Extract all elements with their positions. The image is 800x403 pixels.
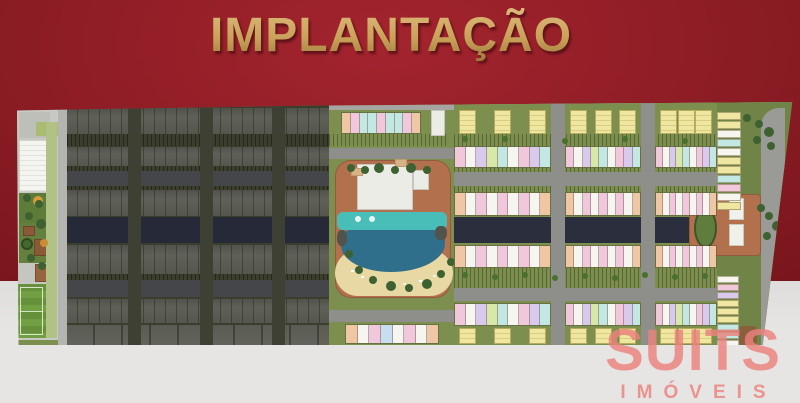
unit-tile xyxy=(487,246,498,267)
unit-tile xyxy=(498,246,509,267)
unit-tile xyxy=(656,147,663,167)
unit-tile xyxy=(633,193,640,215)
unit-tile xyxy=(633,147,640,167)
unit-pair-tile xyxy=(695,110,712,134)
unit-tile xyxy=(670,304,677,325)
unit-pair-tile xyxy=(570,110,587,134)
unit-tile xyxy=(540,304,550,325)
unit-pair-tile xyxy=(459,328,476,344)
unit-tile xyxy=(395,113,404,133)
unit-pair-tile xyxy=(494,110,511,134)
unit-row-mixed xyxy=(655,146,717,168)
unit-tile xyxy=(624,147,632,167)
unit-tile xyxy=(583,246,591,267)
unit-tile xyxy=(676,246,683,267)
unit-tile xyxy=(519,304,530,325)
unit-tile xyxy=(566,246,574,267)
unit-tile xyxy=(676,304,683,325)
right-stack-tag xyxy=(717,284,739,291)
unit-tile xyxy=(466,304,477,325)
unit-tile xyxy=(690,246,697,267)
unit-pair-tile xyxy=(619,110,636,134)
unit-tile xyxy=(381,325,393,343)
unit-tile xyxy=(697,193,704,215)
center-top-building xyxy=(341,112,421,134)
units-layer xyxy=(17,102,793,345)
unit-row-pairs xyxy=(565,328,641,344)
unit-tile xyxy=(683,193,690,215)
unit-row-mixed xyxy=(565,303,641,326)
unit-tile xyxy=(591,193,599,215)
unit-tile xyxy=(530,147,541,167)
unit-tile xyxy=(574,304,582,325)
unit-tile xyxy=(616,246,624,267)
unit-tile xyxy=(690,147,697,167)
right-stack-tag xyxy=(717,121,741,129)
unit-tile xyxy=(633,246,640,267)
right-stack-tag xyxy=(717,130,741,138)
unit-tile xyxy=(466,193,477,215)
unit-tile xyxy=(476,246,487,267)
unit-pair-tile xyxy=(660,110,677,134)
unit-tile xyxy=(663,304,670,325)
unit-tile xyxy=(455,193,466,215)
unit-tile xyxy=(697,147,704,167)
right-stack-tag xyxy=(717,292,739,299)
unit-pair-tile xyxy=(678,110,695,134)
unit-tile xyxy=(583,304,591,325)
unit-tile xyxy=(633,304,640,325)
unit-tile xyxy=(583,193,591,215)
unit-tile xyxy=(703,246,710,267)
unit-tile xyxy=(697,246,704,267)
unit-tile xyxy=(498,147,509,167)
unit-tile xyxy=(591,147,599,167)
unit-tile xyxy=(683,147,690,167)
unit-tile xyxy=(393,325,405,343)
unit-tile xyxy=(670,193,677,215)
unit-tile xyxy=(599,246,607,267)
unit-pair-tile xyxy=(529,328,546,344)
unit-tile xyxy=(487,147,498,167)
unit-tile xyxy=(574,193,582,215)
unit-tile xyxy=(599,147,607,167)
unit-tile xyxy=(466,246,477,267)
unit-tile xyxy=(455,246,466,267)
unit-tile xyxy=(676,147,683,167)
unit-tile xyxy=(710,147,716,167)
unit-tile xyxy=(670,147,677,167)
unit-tile xyxy=(508,147,519,167)
unit-tile xyxy=(608,193,616,215)
unit-tile xyxy=(487,304,498,325)
unit-tile xyxy=(710,193,716,215)
siteplan xyxy=(17,102,793,345)
unit-tile xyxy=(663,147,670,167)
unit-tile xyxy=(690,193,697,215)
right-stack-tag xyxy=(717,332,739,339)
unit-pair-tile xyxy=(595,328,612,344)
unit-tile xyxy=(616,304,624,325)
unit-row-pairs xyxy=(655,328,717,344)
unit-tile xyxy=(466,147,477,167)
unit-tile xyxy=(519,193,530,215)
unit-pair-tile xyxy=(595,110,612,134)
unit-tile xyxy=(369,325,381,343)
unit-pair-tile xyxy=(660,328,677,344)
unit-tile xyxy=(656,193,663,215)
unit-tile xyxy=(530,304,541,325)
page-title: IMPLANTAÇÃO xyxy=(210,8,572,63)
unit-tile xyxy=(519,147,530,167)
unit-tile xyxy=(412,113,420,133)
unit-row-pairs xyxy=(565,110,641,134)
unit-tile xyxy=(599,193,607,215)
unit-row-mixed xyxy=(565,146,641,168)
right-stack-tag xyxy=(717,184,741,192)
right-stack-tag xyxy=(717,139,741,147)
unit-tile xyxy=(690,304,697,325)
unit-row-long xyxy=(454,245,551,268)
right-stack-tag xyxy=(717,148,741,156)
unit-tile xyxy=(616,147,624,167)
right-stack-tag xyxy=(717,276,739,283)
unit-row-long xyxy=(655,245,717,268)
unit-tile xyxy=(455,304,466,325)
unit-tile xyxy=(703,304,710,325)
unit-tile xyxy=(608,147,616,167)
unit-tile xyxy=(540,246,550,267)
unit-row-pairs xyxy=(454,328,551,344)
marketing-board: IMPLANTAÇÃO xyxy=(0,0,800,403)
unit-tile xyxy=(683,246,690,267)
unit-pair-tile xyxy=(459,110,476,134)
unit-tile xyxy=(360,113,369,133)
unit-tile xyxy=(624,304,632,325)
unit-tile xyxy=(697,304,704,325)
unit-tile xyxy=(358,325,370,343)
unit-tile xyxy=(703,147,710,167)
unit-tile xyxy=(583,147,591,167)
unit-tile xyxy=(624,246,632,267)
unit-pair-tile xyxy=(619,328,636,344)
unit-tile xyxy=(508,304,519,325)
unit-tile xyxy=(566,147,574,167)
unit-row-long xyxy=(655,192,717,216)
unit-tile xyxy=(386,113,395,133)
unit-tile xyxy=(346,325,358,343)
unit-row-pairs xyxy=(655,110,717,134)
unit-tile xyxy=(540,193,550,215)
unit-tile xyxy=(710,304,716,325)
right-stack-tag xyxy=(717,157,741,165)
unit-tile xyxy=(427,325,438,343)
right-stack-tag xyxy=(717,300,739,307)
unit-row-long xyxy=(454,192,551,216)
unit-pair-tile xyxy=(570,328,587,344)
unit-tile xyxy=(455,147,466,167)
unit-tile xyxy=(530,246,541,267)
unit-tile xyxy=(683,304,690,325)
unit-tile xyxy=(540,147,550,167)
unit-tile xyxy=(574,147,582,167)
unit-row-long xyxy=(565,245,641,268)
unit-tile xyxy=(574,246,582,267)
unit-tile xyxy=(624,193,632,215)
unit-tile xyxy=(498,193,509,215)
unit-pair-tile xyxy=(678,328,695,344)
center-bottom-building xyxy=(345,324,439,344)
unit-tile xyxy=(476,304,487,325)
unit-row-long xyxy=(565,192,641,216)
unit-tile xyxy=(663,246,670,267)
unit-tile xyxy=(487,193,498,215)
right-stack-tag xyxy=(717,316,739,323)
right-stack-tag xyxy=(717,175,741,183)
unit-row-pairs xyxy=(454,110,551,134)
unit-pair-tile xyxy=(494,328,511,344)
right-stack-tag xyxy=(717,308,739,315)
unit-tile xyxy=(519,246,530,267)
unit-tile xyxy=(616,193,624,215)
unit-tile xyxy=(508,246,519,267)
right-stack-tag xyxy=(717,112,741,120)
unit-tile xyxy=(416,325,428,343)
unit-tile xyxy=(498,304,509,325)
unit-tile xyxy=(656,246,663,267)
unit-pair-tile xyxy=(529,110,546,134)
unit-tile xyxy=(403,113,412,133)
unit-tile xyxy=(404,325,416,343)
unit-tile xyxy=(530,193,541,215)
right-stack-tag xyxy=(717,324,739,331)
unit-tile xyxy=(508,193,519,215)
unit-pair-tile xyxy=(695,328,712,344)
unit-tile xyxy=(599,304,607,325)
unit-tile xyxy=(377,113,386,133)
right-stack-tag xyxy=(717,202,741,210)
right-stack-tag xyxy=(717,166,741,174)
unit-tile xyxy=(608,246,616,267)
unit-row-mixed xyxy=(454,146,551,168)
unit-tile xyxy=(676,193,683,215)
unit-tile xyxy=(656,304,663,325)
unit-tile xyxy=(591,304,599,325)
unit-tile xyxy=(670,246,677,267)
unit-tile xyxy=(663,193,670,215)
right-stack-tag xyxy=(717,193,741,201)
unit-row-mixed xyxy=(454,303,551,326)
unit-tile xyxy=(566,193,574,215)
unit-tile xyxy=(710,246,716,267)
unit-tile xyxy=(591,246,599,267)
unit-tile xyxy=(703,193,710,215)
unit-tile xyxy=(351,113,360,133)
unit-row-mixed xyxy=(655,303,717,326)
unit-tile xyxy=(476,147,487,167)
unit-tile xyxy=(368,113,377,133)
unit-tile xyxy=(342,113,351,133)
unit-tile xyxy=(476,193,487,215)
unit-tile xyxy=(566,304,574,325)
unit-tile xyxy=(608,304,616,325)
